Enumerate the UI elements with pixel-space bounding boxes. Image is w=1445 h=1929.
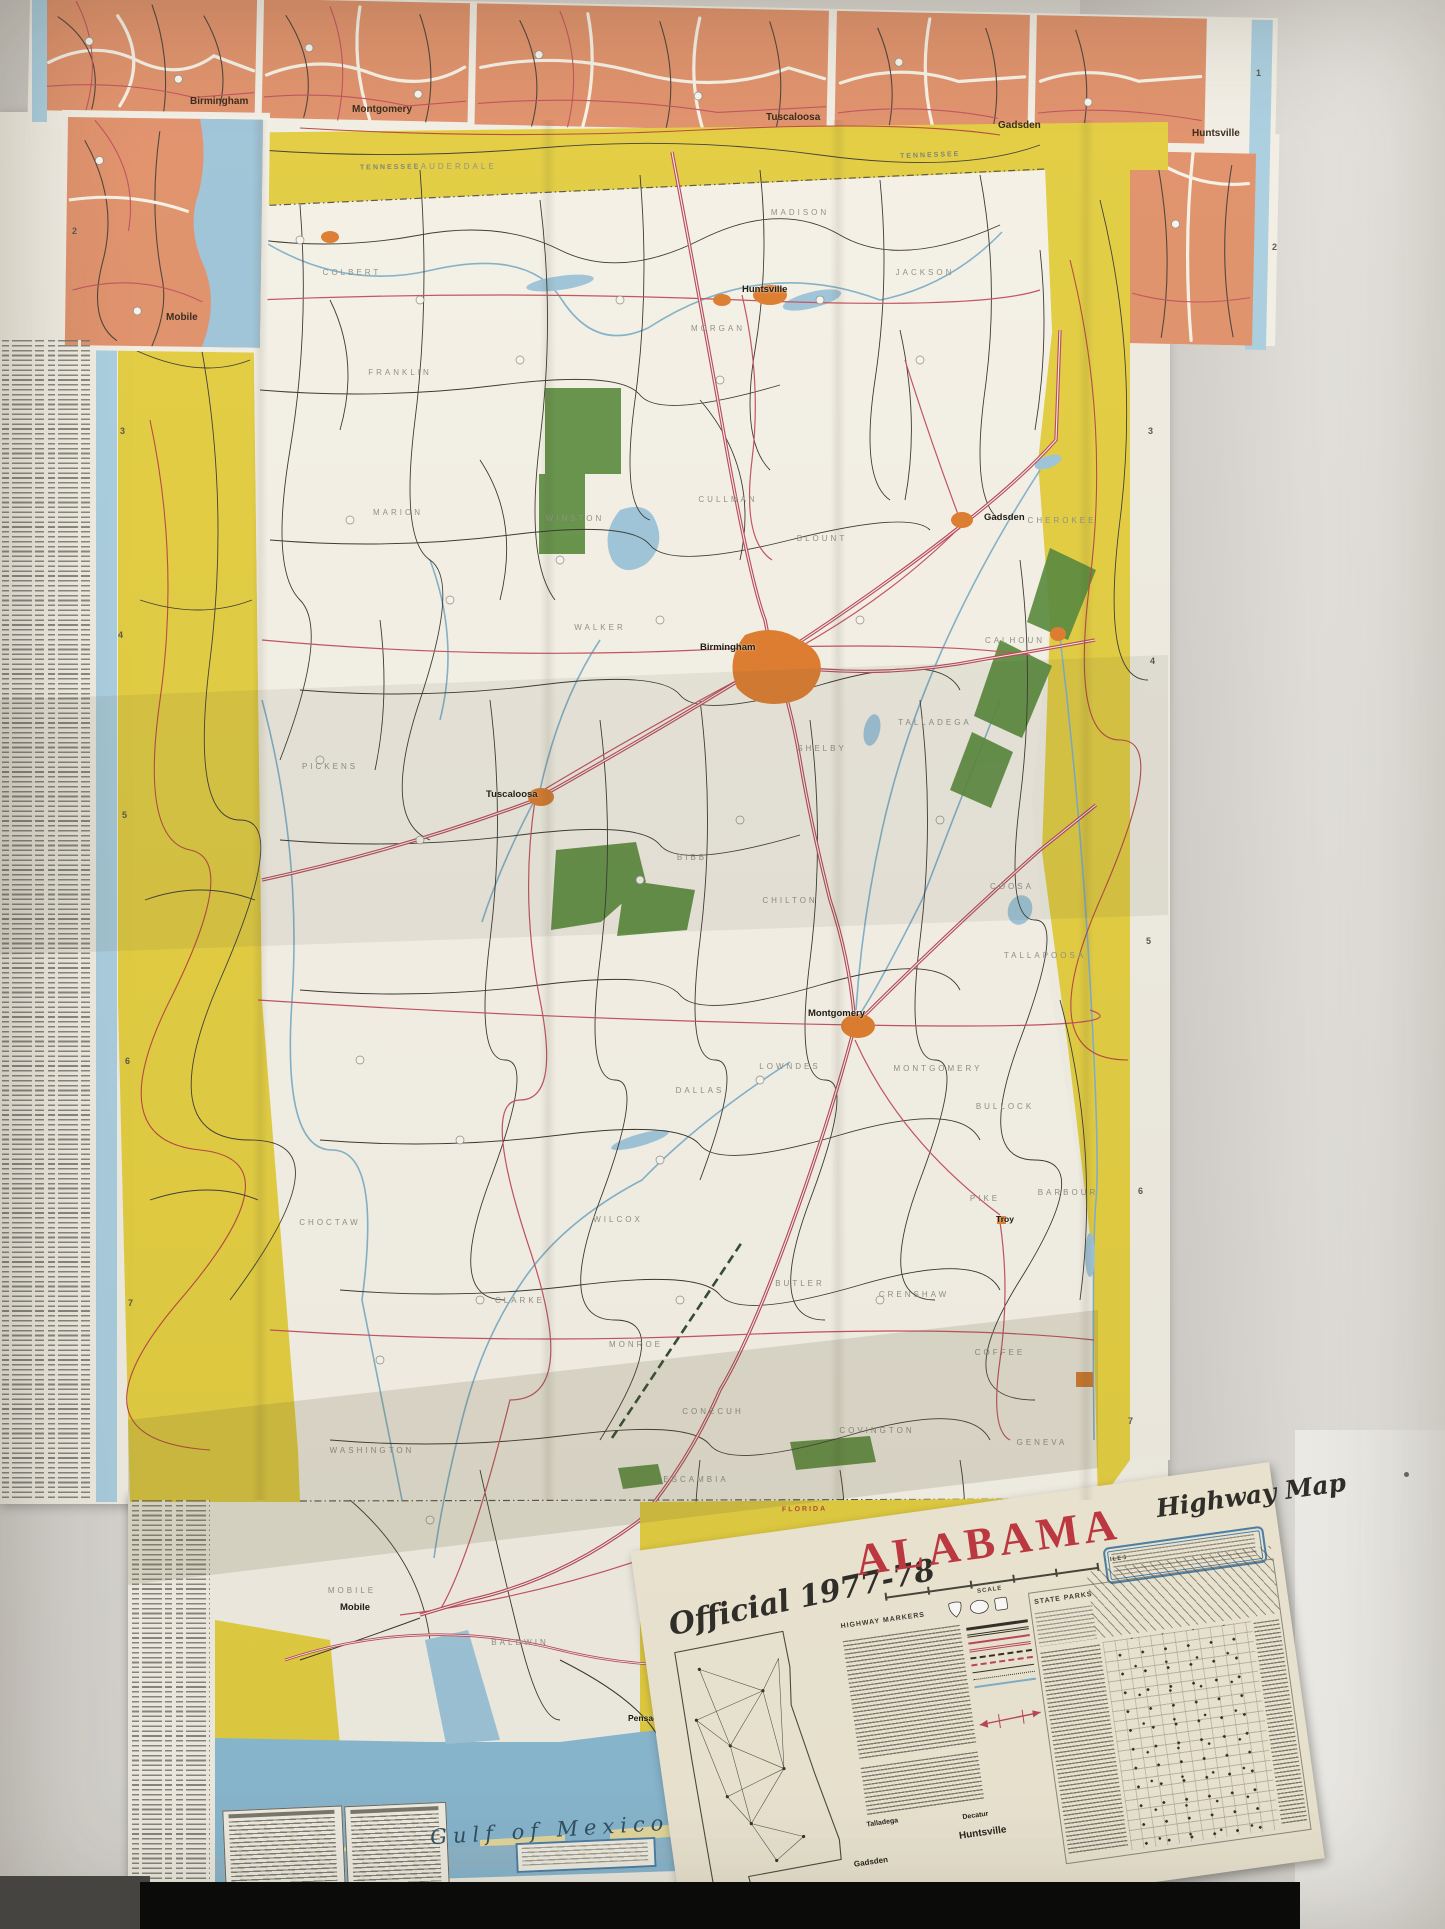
highway-markers-title: HIGHWAY MARKERS (840, 1611, 925, 1630)
inset-title-birmingham: Birmingham (190, 96, 248, 107)
county-label: CONECUH (682, 1407, 743, 1416)
county-label: LOWNDES (759, 1062, 820, 1071)
county-label: MONTGOMERY (894, 1064, 983, 1073)
inset-title-montgomery: Montgomery (352, 104, 412, 115)
county-label: ESCAMBIA (663, 1475, 728, 1484)
legend-city: Talladega (866, 1817, 898, 1828)
county-label: MORGAN (691, 324, 745, 333)
city-label: Huntsville (742, 284, 787, 295)
grid-number: 5 (122, 810, 127, 820)
county-label: MARION (373, 508, 423, 517)
grid-number: 6 (125, 1056, 130, 1066)
inset-title-huntsville: Huntsville (1192, 128, 1240, 139)
city-label: Tuscaloosa (486, 789, 538, 800)
county-label: WASHINGTON (330, 1446, 415, 1455)
grid-number: 2 (72, 226, 77, 236)
county-label: WINSTON (546, 514, 605, 523)
county-label: BULLOCK (976, 1102, 1034, 1111)
state-parks-key (1035, 1605, 1097, 1647)
grid-number: 5 (1146, 936, 1151, 946)
county-label: CRENSHAW (879, 1290, 949, 1299)
county-label: COOSA (990, 882, 1034, 891)
county-label: LAUDERDALE (413, 162, 496, 171)
town-index-column (48, 340, 90, 1498)
town-index-column (176, 1500, 210, 1880)
state-line-label-tennessee: TENNESSEE (360, 163, 421, 171)
legend-city: Huntsville (958, 1824, 1007, 1842)
county-label: BARBOUR (1038, 1188, 1099, 1197)
table-edge (0, 1876, 150, 1929)
grid-number: 3 (1148, 426, 1153, 436)
county-label: SHELBY (797, 744, 847, 753)
grid-number: 4 (1150, 656, 1155, 666)
county-label: FRANKLIN (368, 368, 432, 377)
state-line-label-florida: FLORIDA (782, 1506, 827, 1514)
town-index-column (132, 1500, 172, 1880)
county-label: COLBERT (323, 268, 382, 277)
grid-number: 4 (118, 630, 123, 640)
county-label: BUTLER (775, 1279, 825, 1288)
county-label: WILCOX (593, 1215, 643, 1224)
table-shadow (140, 1882, 1300, 1929)
grid-number: 6 (1138, 1186, 1143, 1196)
county-label: PICKENS (302, 762, 358, 771)
county-label: WALKER (574, 623, 626, 632)
grid-number: 2 (1272, 242, 1277, 252)
mobile-inset (59, 110, 270, 353)
county-label: DALLAS (676, 1086, 725, 1095)
inset-title-mobile: Mobile (166, 312, 198, 323)
county-label: TALLADEGA (898, 718, 972, 727)
county-label: MONROE (609, 1340, 663, 1349)
county-label: CULLMAN (698, 495, 757, 504)
county-label: COFFEE (975, 1348, 1025, 1357)
county-label: CALHOUN (985, 636, 1045, 645)
county-label: CLARKE (495, 1296, 545, 1305)
county-label: MADISON (771, 208, 829, 217)
state-parks-table: STATE PARKS (1028, 1558, 1312, 1864)
telephone-numbers-table (222, 1805, 345, 1892)
grid-number: 7 (1128, 1416, 1133, 1426)
county-label: BIBB (677, 853, 707, 862)
county-label: BALDWIN (491, 1638, 548, 1647)
mileage-arrow-sample (974, 1704, 1048, 1736)
county-label: MOBILE (328, 1586, 376, 1595)
inset-title-gadsden: Gadsden (998, 120, 1041, 131)
marker-shield-icons (940, 1593, 1012, 1621)
inset-title-tuscaloosa: Tuscaloosa (766, 112, 820, 123)
city-label: Mobile (340, 1602, 370, 1613)
scale-label: SCALE (977, 1585, 1003, 1594)
legend-entries-text (861, 1751, 985, 1815)
city-label: Montgomery (808, 1008, 865, 1019)
county-label: JACKSON (896, 268, 955, 277)
county-label: BLOUNT (797, 534, 847, 543)
grid-number: 1 (1256, 68, 1261, 78)
county-label: TALLAPOOSA (1004, 951, 1086, 960)
county-label: GENEVA (1017, 1438, 1068, 1447)
city-label: Troy (996, 1214, 1014, 1224)
county-label: CHOCTAW (299, 1218, 360, 1227)
city-label: Gadsden (984, 512, 1025, 523)
town-index-column (2, 340, 44, 1498)
state-parks-dot-grid (1102, 1621, 1280, 1850)
photo-of-folded-alabama-highway-map: TENNESSEE TENNESSEE FLORIDA Gulf of Mexi… (0, 0, 1445, 1929)
county-label: CHILTON (762, 896, 817, 905)
left-border-stripe (96, 338, 117, 1502)
grid-number: 3 (120, 426, 125, 436)
county-label: COVINGTON (839, 1426, 914, 1435)
legend-entries-text (843, 1625, 977, 1760)
legend-city: Gadsden (853, 1855, 888, 1869)
grid-number: 7 (128, 1298, 133, 1308)
legend-city: Decatur (962, 1811, 989, 1822)
road-style-samples (966, 1615, 1037, 1693)
city-label: Birmingham (700, 642, 755, 653)
county-label: CHEROKEE (1028, 516, 1097, 525)
state-parks-title: STATE PARKS (1034, 1591, 1093, 1606)
county-label: PIKE (970, 1194, 1000, 1203)
main-map (118, 122, 1168, 1720)
